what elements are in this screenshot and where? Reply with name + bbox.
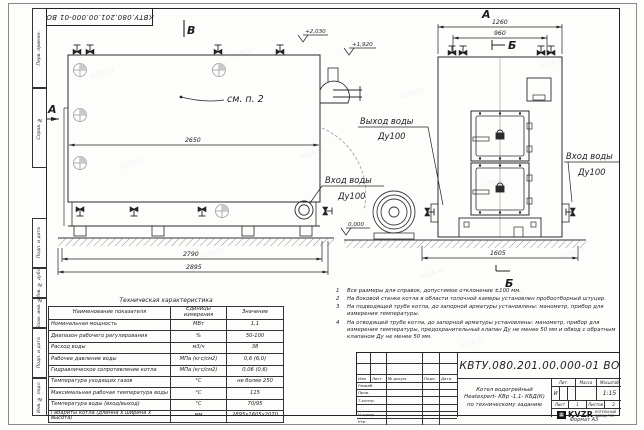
row-prov: Пров.	[357, 390, 387, 396]
col-list: Лист	[371, 375, 387, 382]
inlet-port-flange	[295, 201, 313, 219]
doc-designation: КВТУ.080.201.00.000-01 ВО	[457, 353, 621, 379]
note-text: На боковой стенке котла в области топочн…	[347, 296, 606, 303]
note-number: 3	[336, 304, 343, 318]
scale-value: 1:15	[597, 387, 622, 400]
inlet-right-label: Вход воды Ду100	[564, 151, 620, 202]
row-unit: %	[171, 331, 227, 341]
outlet-label-line1: Выход воды	[360, 116, 414, 126]
col-header-name: Наименование показателя	[49, 307, 171, 319]
front-view	[431, 57, 569, 237]
dim-2650: 2650	[185, 137, 201, 144]
section-a-label: А	[47, 103, 57, 116]
table-row: Номинальная мощностьМВт1,1	[49, 320, 283, 331]
inlet-right-line2: Ду100	[577, 167, 606, 177]
note-item: 1Все размеры для справок, допустимое отк…	[336, 288, 620, 295]
table-row: Габариты котла (длинна х ширина х высота…	[49, 411, 283, 422]
col-doc: № докум.	[387, 375, 423, 382]
dim-960: 960	[494, 30, 506, 37]
note-text: На подводящей трубе котла, до запорной а…	[347, 304, 620, 318]
note-item: 3На подводящей трубе котла, до запорной …	[336, 304, 620, 318]
mass-label: Масса	[576, 379, 597, 386]
table-row: Расход водым3/ч38	[49, 343, 283, 354]
row-name: Температура воды (вход/выход)	[49, 400, 171, 410]
row-value: 0,6 (6,0)	[227, 354, 283, 364]
sheet-value: 1	[569, 401, 587, 408]
table-row: Гидравлическое сопротивление котлаМПа (к…	[49, 366, 283, 377]
valve-icons-top-front-view	[448, 46, 555, 55]
inlet-right-line1: Вход воды	[566, 151, 613, 161]
inlet-left-label: Вход воды Ду100	[310, 175, 384, 203]
ground-hatch-left	[58, 238, 334, 246]
title-block-right: Лит. Масса Масштаб И 1:15 Лист 1 Листов …	[551, 379, 621, 417]
tech-characteristics: Техническая характеристика Наименование …	[48, 297, 284, 423]
dim-1260: 1260	[492, 19, 508, 26]
doc-title-line2: Heatexpert- КВр -1,1- КБД(К)	[464, 394, 545, 401]
row-unit: °С	[171, 388, 227, 398]
row-name: Гидравлическое сопротивление котла	[49, 366, 171, 376]
note-item: 2На боковой стенке котла в области топоч…	[336, 296, 620, 303]
mass-value	[576, 387, 597, 400]
col-header-value: Значение	[227, 307, 283, 319]
notes-list: 1Все размеры для справок, допустимое отк…	[336, 288, 620, 342]
row-name: Максимальная рабочая температура воды	[49, 388, 171, 398]
note-number: 2	[336, 296, 343, 303]
sheet-label: Лист	[552, 401, 569, 408]
row-name: Диапазон рабочего регулирования	[49, 331, 171, 341]
row-name: Номинальная мощность	[49, 320, 171, 330]
row-name: Рабочее давление воды	[49, 354, 171, 364]
section-b-label: В	[187, 24, 195, 37]
table-row: Температура воды (вход/выход)°С70/95	[49, 400, 283, 411]
elev-1920: +1,920	[352, 42, 373, 48]
scale-label: Масштаб	[597, 379, 622, 386]
row-unit: °С	[171, 400, 227, 410]
valve-icons-bottom-left-view	[76, 207, 206, 216]
format-label: Формат А3	[548, 417, 620, 423]
tech-table-header: Наименование показателя Единицы измерени…	[49, 307, 283, 320]
row-unit: °С	[171, 377, 227, 387]
note-text: На отводящей трубе котла, до запорной ар…	[347, 320, 620, 341]
row-nkontr: Н.контр.	[357, 412, 387, 418]
title-block-left: Изм Лист № докум. Подп. Дата Разраб. Про…	[357, 353, 457, 417]
row-unit: МВт	[171, 320, 227, 330]
row-value: не более 250	[227, 377, 283, 387]
row-unit: МПа (кгс/см2)	[171, 354, 227, 364]
view-a-label: А	[481, 8, 491, 21]
row-value: 50-100	[227, 331, 283, 341]
doc-title-line3: по техническому заданию	[467, 402, 542, 409]
outlet-duct	[320, 68, 362, 103]
ground-hatch-right	[344, 240, 586, 248]
sheets-value: 2	[605, 401, 622, 408]
doc-title-line1: Котел водогрейный	[476, 387, 533, 394]
lit-value: И	[552, 387, 560, 400]
table-row: Рабочее давление водыМПа (кгс/см2)0,6 (6…	[49, 354, 283, 365]
note-ref-leader	[181, 97, 224, 101]
col-izm: Изм	[357, 375, 371, 382]
section-b-right-label: Б	[508, 39, 516, 52]
row-value: 1,1	[227, 320, 283, 330]
drawing-sheet: KVZR.kz KVZR.kz KVZR.kz KVZR.kz KVZR.kz …	[0, 0, 644, 430]
table-row: Температура уходящих газов°Сне более 250	[49, 377, 283, 388]
row-value: 38	[227, 343, 283, 353]
outlet-label-line2: Ду100	[377, 131, 406, 141]
side-view	[64, 55, 320, 236]
inlet-left-line2: Ду100	[337, 191, 366, 201]
inlet-left-line1: Вход воды	[325, 175, 372, 185]
col-header-unit: Единицы измерения	[171, 307, 227, 319]
lit-label: Лит.	[552, 379, 576, 386]
row-unit: МПа (кгс/см2)	[171, 366, 227, 376]
note-ref-label: см. п. 2	[227, 94, 264, 105]
note-text: Все размеры для справок, допустимое откл…	[347, 288, 521, 295]
row-unit: м3/ч	[171, 343, 227, 353]
table-row: Диапазон рабочего регулирования%50-100	[49, 331, 283, 342]
row-name: Расход воды	[49, 343, 171, 353]
row-value: 115	[227, 388, 283, 398]
dim-2895: 2895	[186, 264, 202, 271]
sheets-label: Листов	[587, 401, 605, 408]
fan-scroll	[373, 191, 415, 239]
elev-0000: 0,000	[348, 222, 364, 228]
note-number: 1	[336, 288, 343, 295]
manhole-icons	[74, 64, 229, 218]
valve-icon-front-left	[425, 208, 434, 216]
note-item: 4На отводящей трубе котла, до запорной а…	[336, 320, 620, 341]
row-utv: Утв.	[357, 419, 387, 425]
row-razrab: Разраб.	[357, 383, 387, 389]
row-value: 2895х1605х2070	[227, 411, 283, 421]
dim-1605: 1605	[490, 250, 506, 257]
title-block: Изм Лист № докум. Подп. Дата Разраб. Про…	[356, 352, 620, 416]
dim-2790: 2790	[183, 251, 199, 258]
row-unit: мм	[171, 411, 227, 421]
tech-table-title: Техническая характеристика	[48, 297, 284, 304]
row-value: 70/95	[227, 400, 283, 410]
col-podp: Подп.	[423, 375, 440, 382]
note-number: 4	[336, 320, 343, 341]
valve-icon-side-port	[323, 207, 332, 215]
col-data: Дата	[440, 375, 457, 382]
valve-icons-top-left-view	[73, 45, 284, 54]
row-name: Габариты котла (длинна х ширина х высота…	[49, 411, 171, 421]
row-tkontr: Т.контр.	[357, 397, 387, 403]
row-value: 0,06 (0,6)	[227, 366, 283, 376]
tech-table: Наименование показателя Единицы измерени…	[48, 306, 284, 423]
table-row: Максимальная рабочая температура воды°С1…	[49, 388, 283, 399]
elevation-marks	[298, 35, 376, 235]
row-name: Температура уходящих газов	[49, 377, 171, 387]
doc-title: Котел водогрейный Heatexpert- КВр -1,1- …	[457, 379, 551, 417]
valve-icon-front-right	[566, 208, 575, 216]
elev-2030: +2,030	[305, 29, 326, 35]
